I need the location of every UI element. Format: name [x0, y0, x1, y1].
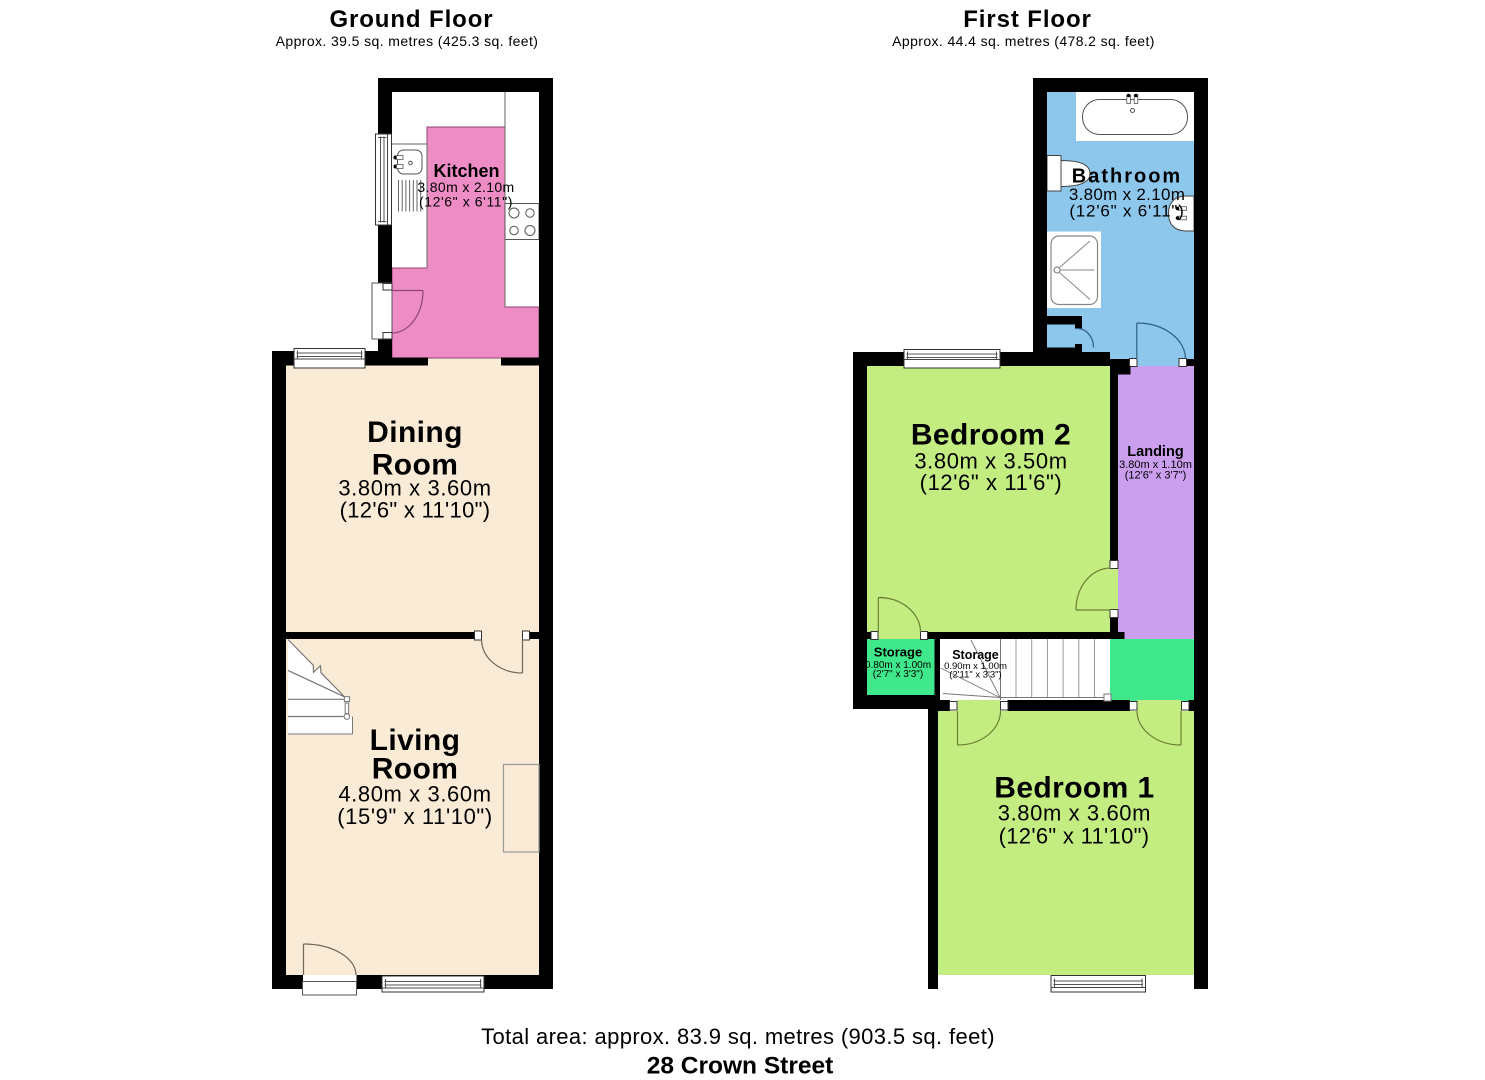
svg-text:(12'6" x 11'10"): (12'6" x 11'10") — [999, 824, 1150, 849]
svg-text:(12'6" x 11'10"): (12'6" x 11'10") — [340, 498, 491, 523]
svg-text:Landing: Landing — [1127, 444, 1183, 460]
svg-text:(15'9" x 11'10"): (15'9" x 11'10") — [337, 804, 493, 829]
svg-text:(12'6" x 6'11"): (12'6" x 6'11") — [1069, 202, 1184, 221]
svg-text:3.80m x 3.60m: 3.80m x 3.60m — [998, 800, 1151, 825]
svg-text:(12'6" x 3'7"): (12'6" x 3'7") — [1125, 470, 1187, 482]
svg-text:4.80m x 3.60m: 4.80m x 3.60m — [338, 782, 491, 807]
svg-text:(2'7" x 3'3"): (2'7" x 3'3") — [873, 669, 923, 680]
svg-text:(12'6" x 11'6"): (12'6" x 11'6") — [920, 470, 1063, 495]
svg-text:Approx. 44.4 sq. metres (478.2: Approx. 44.4 sq. metres (478.2 sq. feet) — [892, 33, 1155, 49]
svg-text:Storage: Storage — [952, 648, 999, 662]
svg-text:Approx. 39.5 sq. metres (425.3: Approx. 39.5 sq. metres (425.3 sq. feet) — [276, 33, 539, 49]
svg-text:28 Crown Street: 28 Crown Street — [647, 1053, 834, 1080]
svg-text:Ground Floor: Ground Floor — [329, 6, 493, 33]
svg-text:(12'6" x 6'11"): (12'6" x 6'11") — [419, 194, 513, 210]
svg-text:Bedroom 2: Bedroom 2 — [911, 419, 1071, 452]
svg-text:Storage: Storage — [874, 645, 922, 660]
svg-text:First Floor: First Floor — [963, 6, 1092, 33]
svg-text:Bedroom 1: Bedroom 1 — [994, 771, 1154, 804]
svg-text:Total area: approx. 83.9 sq. m: Total area: approx. 83.9 sq. metres (903… — [481, 1024, 995, 1049]
svg-text:Kitchen: Kitchen — [433, 161, 499, 181]
svg-text:Dining: Dining — [367, 416, 463, 449]
svg-text:(2'11" x 3'3"): (2'11" x 3'3") — [949, 669, 1001, 680]
